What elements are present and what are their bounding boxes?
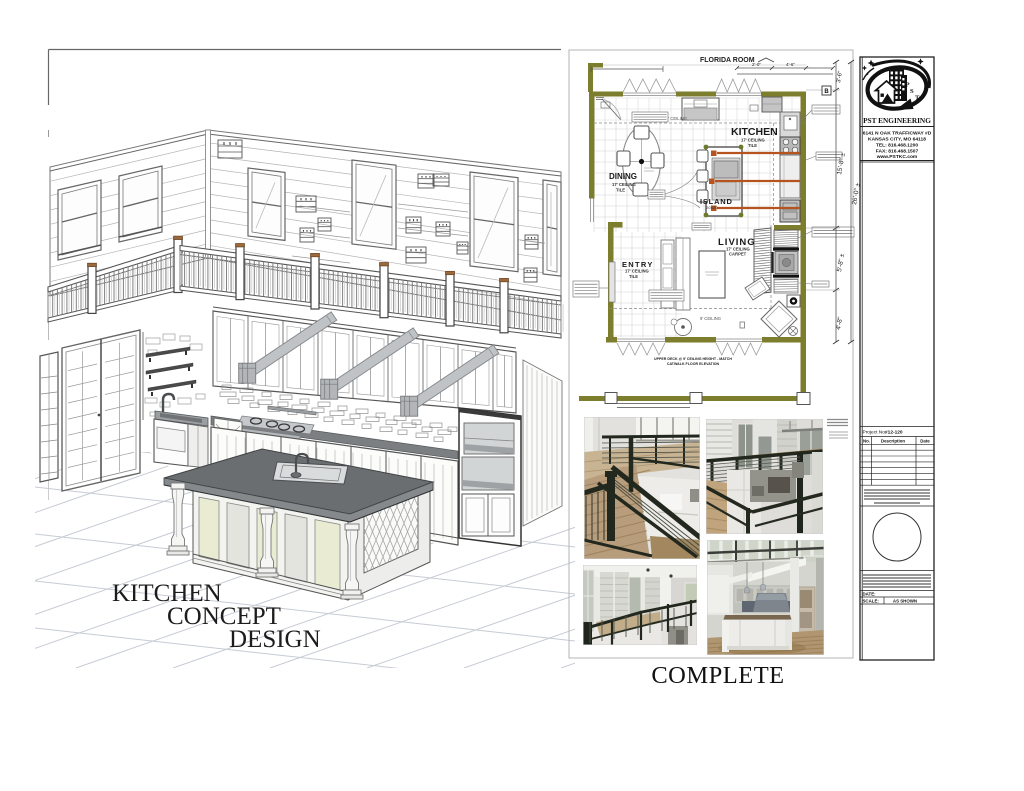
svg-text:20X20: 20X20 <box>706 205 718 210</box>
svg-text:T: T <box>915 95 920 102</box>
svg-text:TEL: 816.468.1200: TEL: 816.468.1200 <box>876 143 918 149</box>
svg-text:SCALE:: SCALE: <box>863 598 880 603</box>
svg-text:9' CEILING: 9' CEILING <box>700 316 721 321</box>
svg-text:17' CEILING: 17' CEILING <box>625 269 649 274</box>
svg-text:DESIGN: DESIGN <box>229 626 321 653</box>
svg-text:Project No:: Project No: <box>863 430 887 436</box>
svg-text:Date: Date <box>920 439 930 444</box>
svg-text:3'-6": 3'-6" <box>836 71 844 84</box>
svg-text:5'-8" ±: 5'-8" ± <box>836 253 846 273</box>
svg-text:9' CEILING: 9' CEILING <box>666 116 687 121</box>
svg-text:UPPER DECK @ 9' CEILING HEIGHT: UPPER DECK @ 9' CEILING HEIGHT - MATCH <box>654 357 732 361</box>
svg-text:B: B <box>824 89 829 95</box>
svg-text:4'-6": 4'-6" <box>786 62 795 67</box>
svg-text:AS SHOWN: AS SHOWN <box>893 598 917 603</box>
svg-text:S: S <box>910 88 914 95</box>
svg-text:P: P <box>906 82 910 89</box>
svg-text:17' CEILING: 17' CEILING <box>741 138 765 143</box>
svg-text:COMPLETE: COMPLETE <box>651 662 784 689</box>
svg-text:FLORIDA ROOM: FLORIDA ROOM <box>700 57 755 64</box>
svg-text:17' CEILING: 17' CEILING <box>612 182 636 187</box>
svg-text:FAX: 816.468.1507: FAX: 816.468.1507 <box>876 149 919 155</box>
svg-text:DATE:: DATE: <box>863 592 877 597</box>
svg-text:6141 N OAK TRAFFICWAY #D: 6141 N OAK TRAFFICWAY #D <box>863 131 932 137</box>
svg-text:KANSAS CITY, MO 64118: KANSAS CITY, MO 64118 <box>868 137 926 143</box>
svg-text:4'-8": 4'-8" <box>835 316 844 331</box>
svg-text:www.PSTKC.com: www.PSTKC.com <box>876 154 918 160</box>
svg-text:TILE: TILE <box>629 274 638 279</box>
svg-text:#12-120: #12-120 <box>885 430 903 436</box>
svg-text:Description: Description <box>881 439 905 444</box>
svg-text:No.: No. <box>863 439 870 444</box>
svg-text:TILE: TILE <box>748 143 757 148</box>
svg-text:PST ENGINEERING: PST ENGINEERING <box>863 116 931 125</box>
svg-text:CARPET: CARPET <box>729 252 747 257</box>
svg-text:TILE: TILE <box>616 188 625 193</box>
svg-text:CATWALK FLOOR ELEVATION: CATWALK FLOOR ELEVATION <box>667 362 720 366</box>
svg-text:KITCHEN: KITCHEN <box>731 126 778 138</box>
svg-text:DINING: DINING <box>609 172 637 181</box>
svg-text:2'-0": 2'-0" <box>752 62 761 67</box>
